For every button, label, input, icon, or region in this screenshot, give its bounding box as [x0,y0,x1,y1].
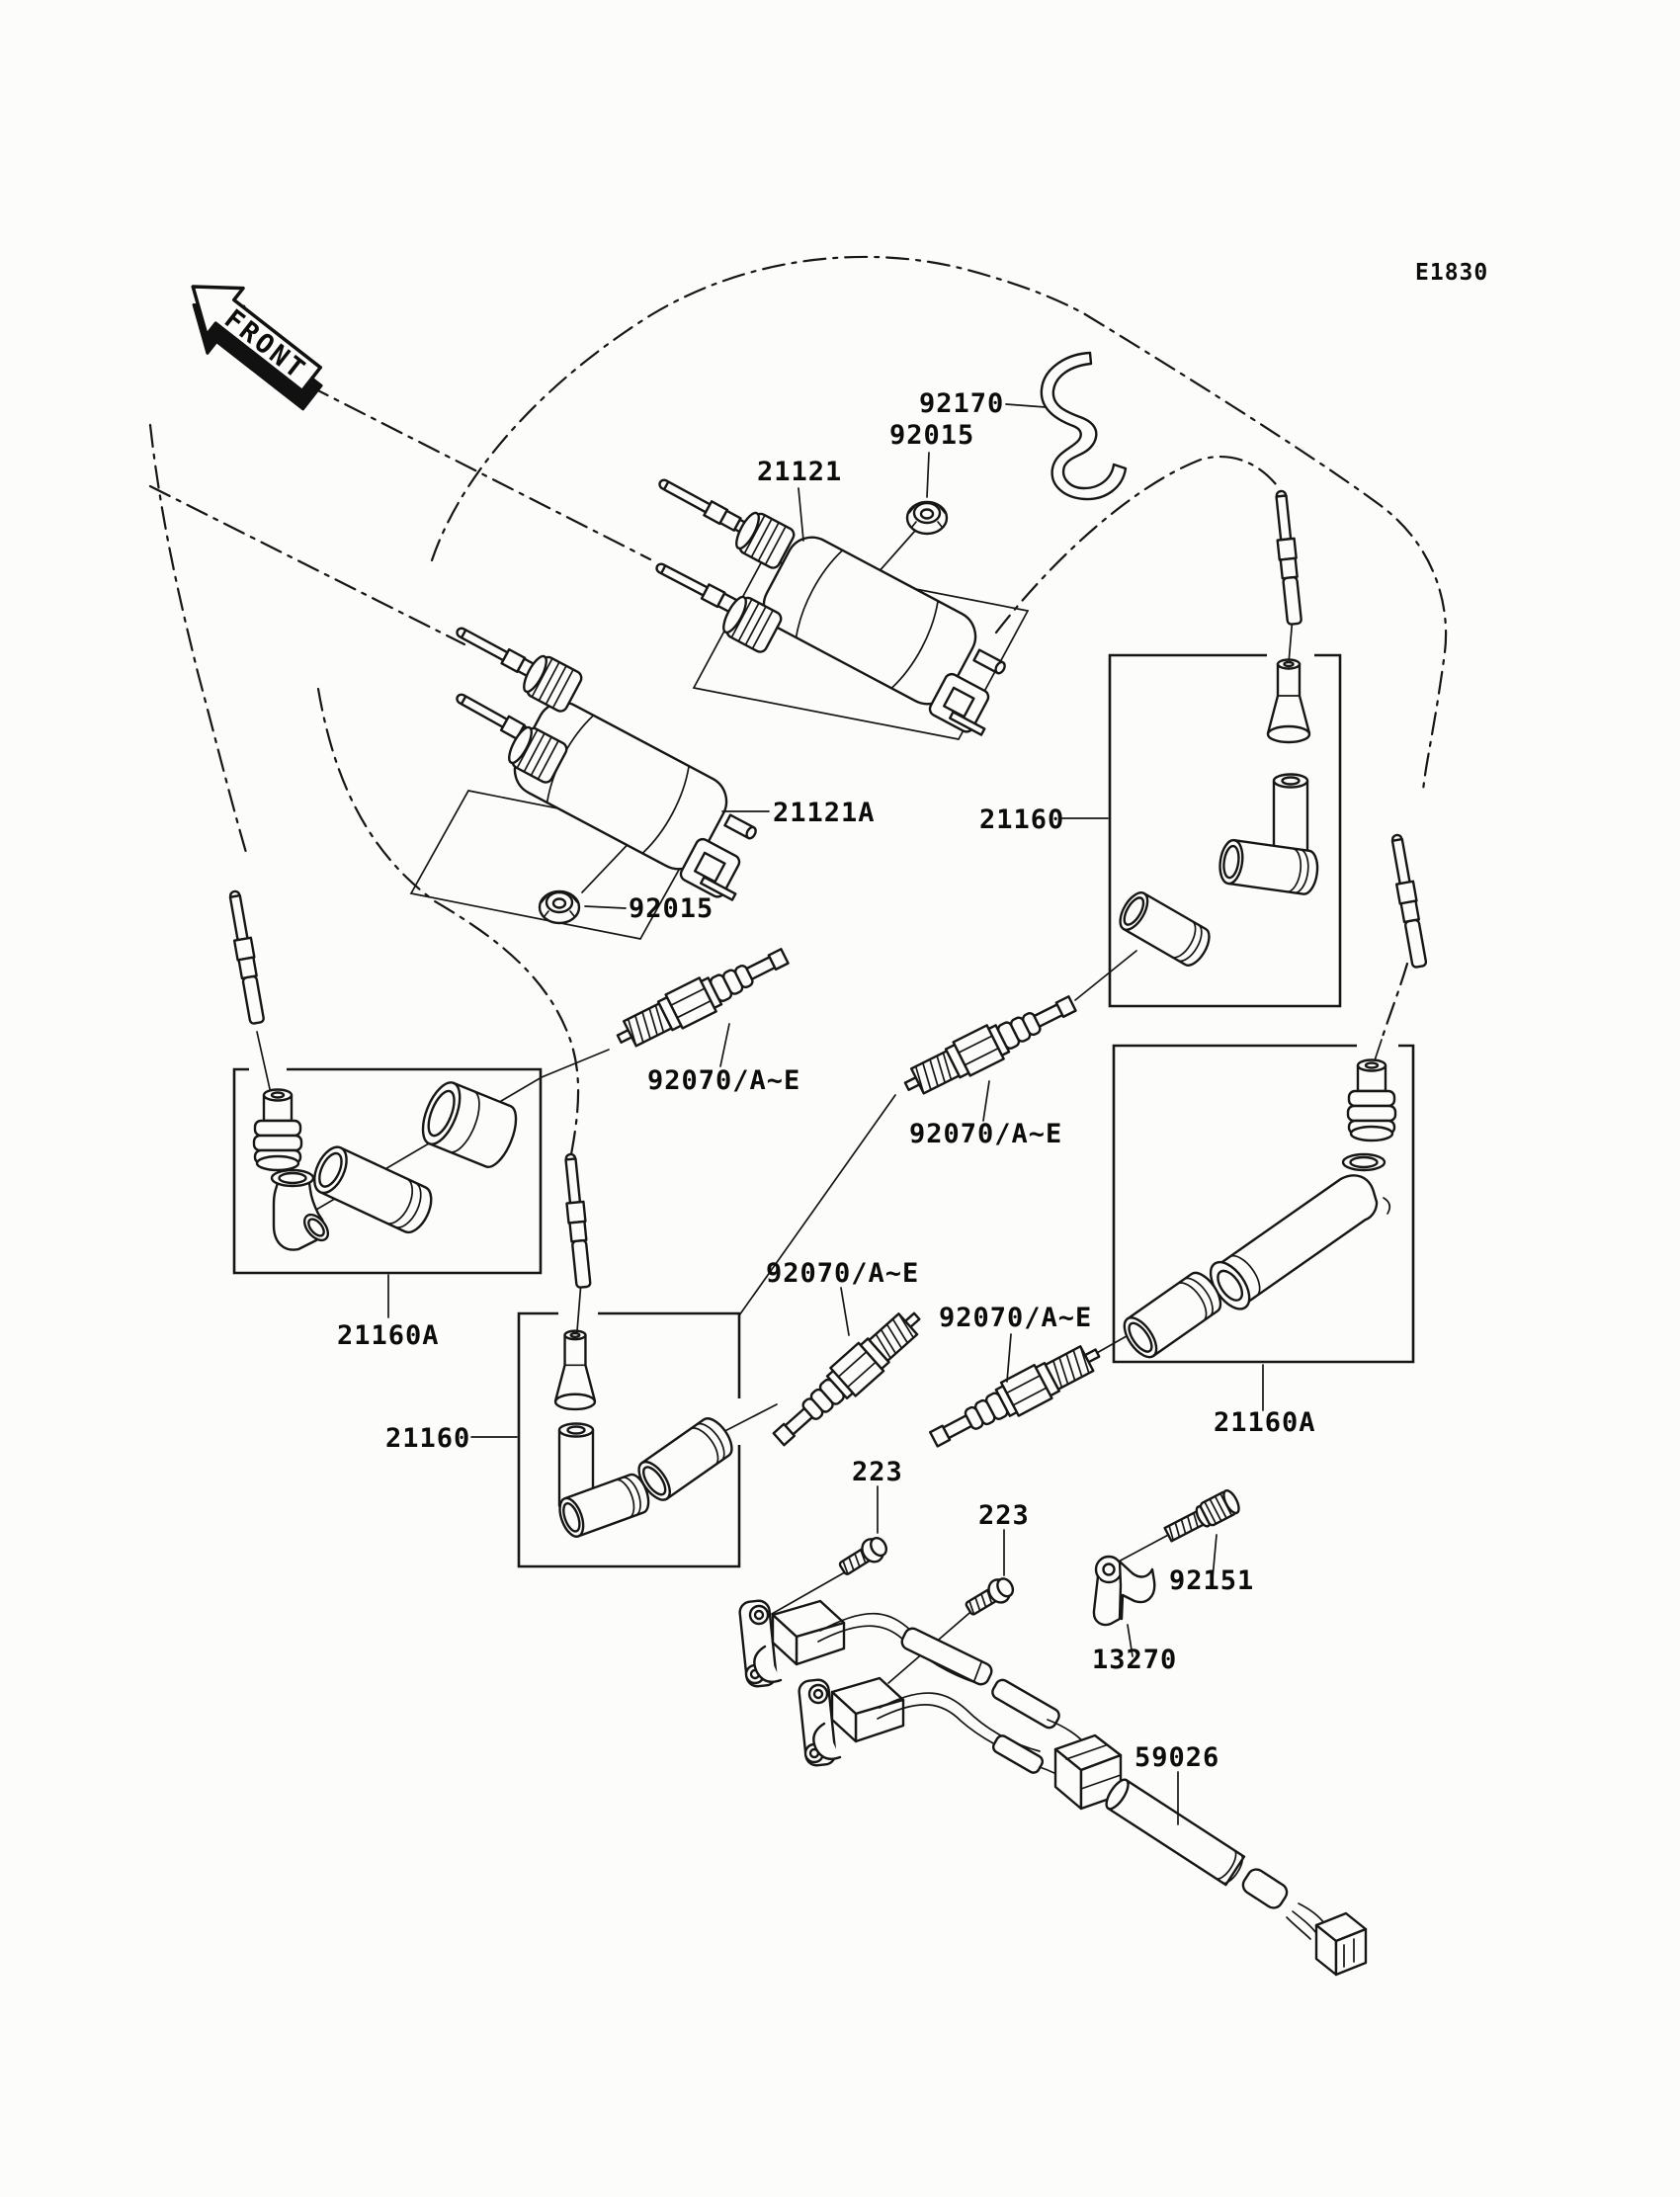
plug-cap-21160-right [1115,660,1320,971]
ht-lead-middle [562,1153,593,1288]
label-223-right: 223 [978,1500,1030,1531]
label-59026: 59026 [1134,1742,1219,1773]
front-direction-arrow: FRONT [166,263,339,420]
label-21121A: 21121A [773,798,876,828]
parts-diagram-page: E1830 92170 92015 21121 21121A 92015 211… [0,0,1680,2197]
label-92170: 92170 [919,388,1004,419]
label-92151: 92151 [1169,1565,1254,1596]
label-21121: 21121 [757,457,842,487]
label-13270: 13270 [1092,1645,1177,1675]
screw-223-left [836,1533,890,1579]
label-92070-3: 92070/A~E [766,1258,919,1289]
label-21160-center: 21160 [385,1423,470,1454]
nut-92015-upper [907,502,947,534]
plug-cap-21160A-right [1118,1060,1395,1363]
spark-plug-2 [898,986,1080,1103]
ht-lead-right-lower [1388,834,1428,969]
ignition-coil-21121A [454,624,778,904]
ignition-system-exploded-diagram: E1830 92170 92015 21121 21121A 92015 211… [0,0,1680,2197]
label-92015-lower: 92015 [629,893,714,924]
plug-cap-21160-center [555,1331,738,1540]
spark-plug-1 [611,939,793,1056]
harness-59026 [739,1600,1366,1975]
ht-lead-left [226,890,266,1025]
label-21160-right: 21160 [979,804,1064,835]
label-92015-upper: 92015 [889,420,974,451]
nut-92015-lower [540,891,579,923]
label-92070-2: 92070/A~E [909,1119,1062,1149]
drawing-code-label: E1830 [1415,260,1488,286]
plug-cap-21160A-left [254,1077,523,1249]
label-21160A-left: 21160A [337,1320,440,1351]
label-92070-1: 92070/A~E [647,1065,800,1096]
spark-plug-4 [925,1336,1106,1456]
bracket-13270 [1094,1557,1154,1625]
ignition-coil-21121 [653,475,1027,739]
bolt-92151 [1162,1488,1241,1546]
ht-lead-right-upper [1273,490,1303,625]
clamp-92170 [1042,353,1126,499]
label-223-left: 223 [852,1457,903,1487]
label-21160A-right: 21160A [1214,1407,1316,1438]
screw-223-right [963,1573,1017,1619]
frame-reference-lines [150,257,1446,1154]
label-92070-4: 92070/A~E [939,1303,1092,1333]
